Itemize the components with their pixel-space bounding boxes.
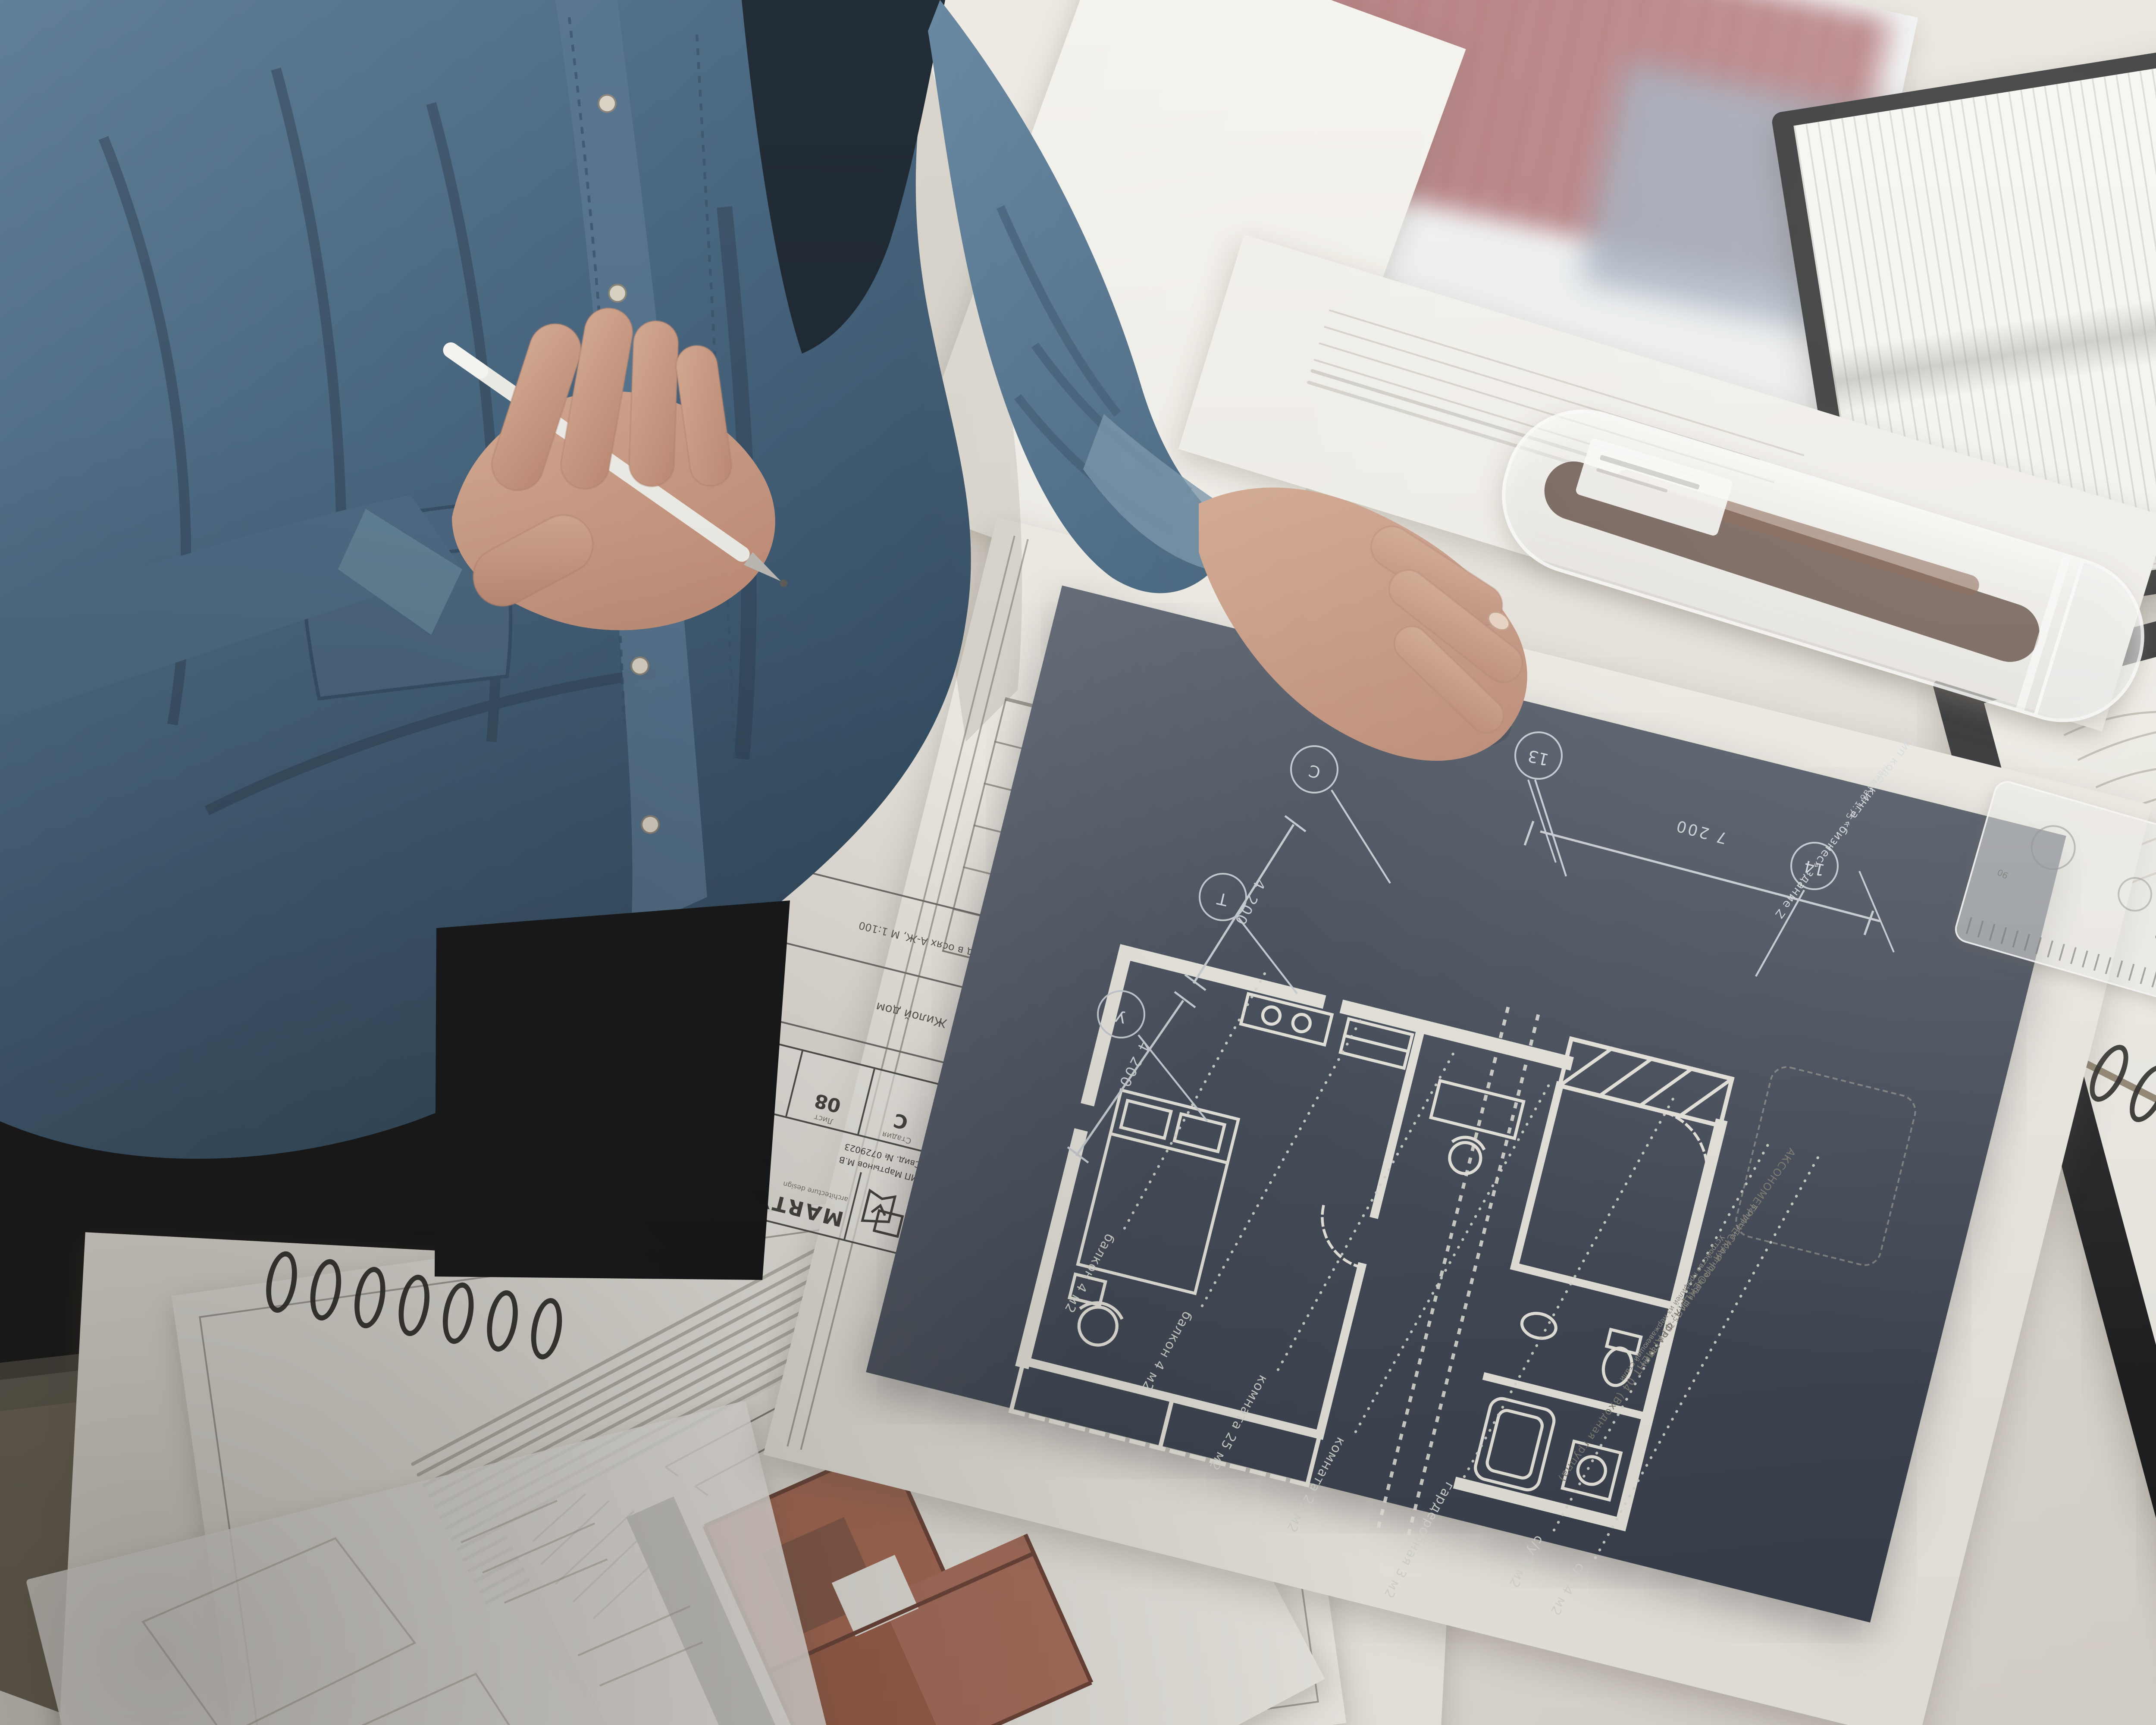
architect-person bbox=[0, 0, 1690, 1449]
ruler-hole bbox=[2114, 873, 2156, 916]
right-hand bbox=[1199, 488, 1530, 761]
ruler-number: 50 bbox=[2154, 929, 2156, 943]
ruler-number: 90 bbox=[1996, 866, 2010, 880]
photo-architect-desk: Жилой дом Фасад в осях А-Ж, М 1:100 MART… bbox=[0, 0, 2156, 1725]
black-trousers bbox=[435, 900, 790, 1280]
ruler-hole bbox=[2025, 820, 2081, 875]
notebook-gutter bbox=[1829, 233, 2156, 414]
